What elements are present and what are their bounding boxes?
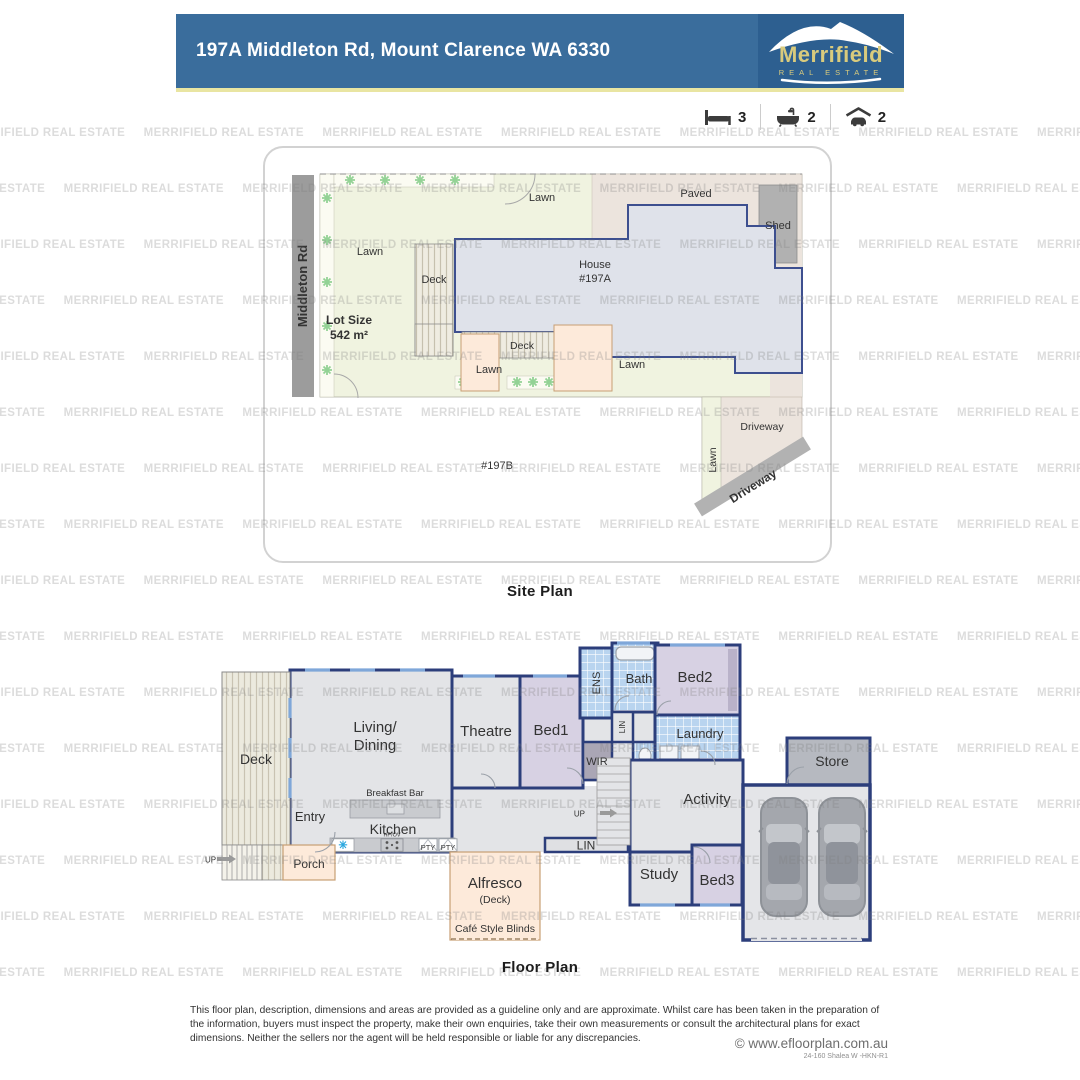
logo-name: Merrifield	[779, 44, 883, 66]
pantry-label: PTY	[441, 843, 456, 852]
logo-swoosh-icon	[776, 77, 886, 85]
bed2-robe	[728, 649, 737, 711]
site-plan-title: Site Plan	[0, 583, 1080, 600]
deck-label: Deck	[421, 274, 447, 286]
lot-size-label-1: Lot Size	[326, 313, 372, 327]
baths-summary: 2	[761, 107, 829, 127]
floor-plan-title: Floor Plan	[0, 959, 1080, 976]
laundry-appliance	[660, 746, 678, 760]
theatre-label: Theatre	[460, 723, 512, 740]
house-label-1: House	[579, 259, 611, 271]
site-deck-stairs	[415, 324, 453, 356]
up-label-right: UP	[574, 810, 585, 819]
stairs-up-left	[222, 845, 262, 880]
property-summary: 3 2 2	[690, 102, 900, 132]
floor-plan-area: Deck Living/ Dining Theatre Bed1 ENS Bat…	[195, 638, 880, 948]
bed1-label: Bed1	[533, 722, 568, 739]
flyer-page: 197A Middleton Rd, Mount Clarence WA 633…	[0, 0, 1080, 1080]
wir-label: WIR	[586, 756, 607, 768]
bath-icon	[775, 107, 801, 127]
lawn-label-vertical: Lawn	[707, 447, 719, 472]
deck-label: Deck	[240, 751, 273, 767]
sink	[387, 804, 404, 814]
blinds-label: Café Style Blinds	[455, 923, 535, 935]
fridge-snowflake-icon	[339, 841, 347, 850]
hpov-label: HP/OV	[383, 833, 400, 839]
house-label-2: #197A	[579, 273, 611, 285]
shed-label: Shed	[765, 220, 791, 232]
breakfast-bar-label: Breakfast Bar	[366, 788, 424, 799]
beds-summary: 3	[690, 109, 760, 126]
site-plan-drawing: Middleton Rd Lawn Lawn Lawn Lawn Lawn De…	[265, 148, 830, 561]
laundry-label: Laundry	[677, 726, 724, 741]
living-label-2: Dining	[354, 737, 397, 754]
lawn-label: Lawn	[619, 359, 645, 371]
store-label: Store	[815, 753, 849, 769]
lawn-label: Lawn	[529, 192, 555, 204]
linen-label: LIN	[618, 721, 627, 734]
entry-label: Entry	[295, 809, 326, 824]
site-alfresco	[554, 325, 612, 391]
car-1	[759, 798, 809, 916]
road-label: Middleton Rd	[295, 245, 310, 327]
lawn-label: Lawn	[357, 246, 383, 258]
living-label-1: Living/	[353, 719, 397, 736]
car-garage-icon	[845, 107, 872, 127]
floor-plan-drawing: Deck Living/ Dining Theatre Bed1 ENS Bat…	[195, 638, 880, 948]
site-plan-card: Middleton Rd Lawn Lawn Lawn Lawn Lawn De…	[263, 146, 832, 563]
beds-count: 3	[738, 109, 746, 126]
bed2-label: Bed2	[677, 669, 712, 686]
alfresco-label: Alfresco	[468, 875, 522, 892]
plan-reference: 24-160 Shalea W -HKN-R1	[735, 1053, 888, 1060]
efloorplan-credit: © www.efloorplan.com.au	[735, 1036, 888, 1051]
cars-summary: 2	[831, 107, 900, 127]
baths-count: 2	[807, 109, 815, 126]
driveway-label: Driveway	[740, 421, 784, 433]
laundry-appliance	[681, 746, 699, 760]
cars-count: 2	[878, 109, 886, 126]
lot-size-label-2: 542 m²	[330, 328, 368, 342]
credit-block: © www.efloorplan.com.au 24-160 Shalea W …	[735, 1036, 888, 1060]
header-bar: 197A Middleton Rd, Mount Clarence WA 633…	[176, 14, 904, 88]
paved-label: Paved	[680, 188, 711, 200]
site-porch	[461, 334, 499, 391]
pantry-label: PTY	[421, 843, 436, 852]
ensuite-label: ENS	[591, 672, 603, 695]
header-underline	[176, 88, 904, 92]
study-label: Study	[640, 866, 679, 883]
porch-label: Porch	[293, 857, 324, 871]
planter-top	[334, 174, 494, 187]
alfresco-sub-label: (Deck)	[480, 894, 511, 906]
bathtub	[616, 647, 654, 660]
deck-label: Deck	[510, 340, 535, 352]
up-label-left: UP	[205, 856, 216, 865]
bath-label: Bath	[626, 671, 653, 686]
lawn-label: Lawn	[476, 364, 502, 376]
stairs-up-right	[597, 758, 630, 845]
activity-label: Activity	[683, 791, 731, 808]
car-2	[817, 798, 867, 916]
agency-logo: Merrifield REAL ESTATE	[758, 14, 904, 88]
bed-icon	[704, 109, 732, 126]
neighbour-label: #197B	[481, 460, 513, 472]
property-address: 197A Middleton Rd, Mount Clarence WA 633…	[176, 40, 610, 62]
bed3-label: Bed3	[699, 872, 734, 889]
logo-tagline: REAL ESTATE	[779, 68, 883, 77]
linen2-label: LIN	[577, 839, 596, 853]
